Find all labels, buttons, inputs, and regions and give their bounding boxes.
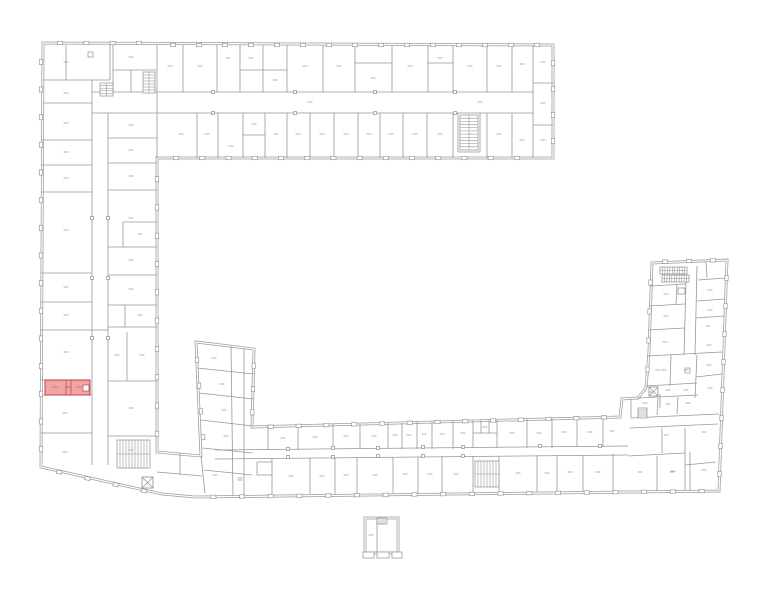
window-tick (39, 225, 42, 230)
window-tick (469, 492, 474, 495)
fixtures (88, 52, 690, 558)
window-tick (357, 156, 362, 159)
window-tick (722, 359, 726, 364)
window-tick (527, 491, 532, 494)
interior-wall (696, 374, 722, 377)
window-tick (710, 259, 715, 263)
column-mark (377, 455, 380, 458)
interior-wall (670, 355, 671, 386)
window-tick (200, 156, 205, 159)
window-tick (110, 41, 115, 44)
window-tick (518, 418, 523, 422)
window-tick (155, 205, 158, 210)
interior-wall (646, 383, 697, 386)
column-mark (462, 455, 465, 458)
window-tick (226, 156, 231, 159)
window-tick (141, 489, 147, 493)
window-tick (404, 43, 409, 46)
room-number-labels (63, 57, 713, 535)
interior-wall (157, 472, 202, 476)
interior-wall (648, 328, 685, 330)
staircase-icon (377, 518, 387, 524)
interior-wall (201, 420, 253, 426)
column-mark (374, 91, 377, 94)
window-tick (409, 156, 414, 159)
window-tick (201, 434, 205, 439)
window-tick (39, 391, 42, 396)
window-tick (670, 490, 675, 493)
column-mark (107, 277, 110, 280)
column-mark (454, 112, 457, 115)
column-mark (294, 112, 297, 115)
column-mark (91, 277, 94, 280)
window-tick (56, 470, 62, 474)
fixture (363, 552, 374, 558)
interior-wall (657, 398, 658, 415)
column-mark (599, 445, 602, 448)
building-outline (41, 43, 727, 553)
column-mark (287, 448, 290, 451)
window-tick (435, 420, 440, 424)
window-tick (574, 416, 579, 420)
corridor-columns (91, 91, 602, 459)
window-tick (39, 170, 42, 175)
window-tick (155, 431, 158, 436)
column-mark (422, 446, 425, 449)
elevator-icon (649, 387, 658, 396)
window-tick (412, 493, 417, 496)
elevators (142, 387, 658, 488)
window-tick (720, 415, 724, 420)
fixture (377, 552, 389, 558)
staircase-icon (143, 72, 155, 93)
window-tick (252, 363, 256, 368)
window-tick (383, 156, 388, 159)
staircase-icon (660, 267, 687, 274)
window-tick (551, 86, 554, 91)
window-tick (546, 417, 551, 421)
window-tick (155, 177, 158, 182)
interior-wall (696, 316, 724, 318)
window-tick (58, 41, 63, 44)
window-tick (514, 156, 519, 159)
window-tick (601, 416, 606, 420)
column-mark (294, 91, 297, 94)
window-tick (222, 43, 227, 46)
window-tick (642, 490, 647, 493)
window-tick (699, 489, 704, 492)
window-tick (39, 142, 42, 147)
window-tick (39, 447, 42, 452)
fixture (392, 552, 402, 558)
window-tick (430, 43, 435, 46)
window-tick (199, 409, 203, 414)
window-tick (725, 275, 729, 280)
window-tick (352, 43, 357, 46)
window-tick (718, 471, 722, 476)
window-tick (39, 198, 42, 203)
column-mark (91, 217, 94, 220)
window-tick (551, 112, 554, 117)
window-tick (174, 156, 179, 159)
interior-wall (649, 304, 685, 306)
window-tick (613, 490, 618, 493)
window-tick (84, 476, 90, 480)
window-tick (441, 492, 446, 495)
window-tick (274, 43, 279, 46)
window-tick (326, 43, 331, 46)
window-tick (326, 494, 331, 497)
fixture (678, 288, 685, 294)
window-tick (462, 156, 467, 159)
staircase-icon (460, 115, 478, 150)
interior-wall (677, 397, 678, 414)
floor-plan-canvas (0, 0, 772, 600)
window-tick (482, 43, 487, 46)
window-tick (331, 156, 336, 159)
window-tick (39, 115, 42, 120)
window-tick (378, 43, 383, 46)
window-tick (490, 419, 495, 423)
column-mark (539, 445, 542, 448)
column-mark (377, 447, 380, 450)
staircase-icon (662, 275, 689, 282)
window-tick (723, 331, 727, 336)
facade-windows (39, 41, 728, 498)
window-tick (719, 443, 723, 448)
window-tick (300, 43, 305, 46)
window-tick (508, 43, 513, 46)
window-tick (39, 59, 42, 64)
staircase-icon (100, 83, 113, 96)
window-tick (354, 493, 359, 496)
staircase-icon (475, 461, 499, 487)
window-tick (296, 424, 301, 428)
column-mark (91, 337, 94, 340)
window-tick (721, 387, 725, 392)
window-tick (436, 156, 441, 159)
interior-wall (698, 278, 726, 280)
window-tick (278, 156, 283, 159)
interior-wall (650, 284, 686, 286)
column-mark (332, 447, 335, 450)
column-mark (212, 112, 215, 115)
window-tick (39, 419, 42, 424)
window-tick (252, 156, 257, 159)
staircase-icon (117, 440, 150, 468)
window-tick (662, 260, 667, 264)
window-tick (39, 364, 42, 369)
window-tick (297, 494, 302, 497)
window-tick (647, 338, 651, 343)
interior-wall (628, 453, 685, 456)
window-tick (155, 403, 158, 408)
column-mark (454, 91, 457, 94)
window-tick (196, 43, 201, 46)
window-tick (324, 423, 329, 427)
interior-wall (198, 368, 254, 374)
window-tick (39, 308, 42, 313)
window-tick (39, 336, 42, 341)
column-mark (374, 112, 377, 115)
window-tick (488, 156, 493, 159)
window-tick (648, 309, 652, 314)
fixture (88, 52, 93, 57)
window-tick (498, 492, 503, 495)
window-tick (84, 41, 89, 44)
interior-wall (202, 448, 252, 453)
window-tick (155, 375, 158, 380)
column-mark (212, 91, 215, 94)
window-tick (155, 346, 158, 351)
window-tick (584, 491, 589, 494)
window-tick (39, 281, 42, 286)
window-tick (248, 43, 253, 46)
window-tick (407, 421, 412, 425)
window-tick (352, 423, 357, 427)
window-tick (39, 87, 42, 92)
window-tick (155, 318, 158, 323)
interior-wall (695, 355, 697, 398)
highlighted-room[interactable] (45, 380, 90, 395)
interior-wall (204, 470, 253, 475)
outer-wall-core (41, 43, 727, 497)
interior-wall (638, 395, 698, 398)
window-tick (195, 357, 199, 362)
window-tick (155, 233, 158, 238)
window-tick (155, 261, 158, 266)
column-mark (422, 455, 425, 458)
window-tick (251, 386, 255, 391)
window-tick (463, 419, 468, 423)
window-tick (379, 422, 384, 426)
column-mark (107, 337, 110, 340)
window-tick (551, 60, 554, 65)
window-tick (39, 253, 42, 258)
fixture (685, 368, 690, 373)
window-tick (113, 482, 119, 486)
floor-plan-page (0, 0, 772, 600)
window-tick (551, 138, 554, 143)
interior-wall (647, 352, 722, 356)
window-tick (456, 43, 461, 46)
window-tick (724, 303, 728, 308)
window-tick (305, 156, 310, 159)
staircase-icon (638, 408, 647, 418)
window-tick (155, 290, 158, 295)
column-mark (332, 456, 335, 459)
selected-room-notch (83, 385, 89, 391)
outer-wall (41, 43, 727, 497)
elevator-icon (142, 477, 153, 488)
window-tick (649, 280, 653, 285)
window-tick (251, 410, 255, 415)
window-tick (197, 383, 201, 388)
interior-wall (695, 266, 697, 355)
window-tick (383, 493, 388, 496)
column-mark (462, 446, 465, 449)
window-tick (170, 43, 175, 46)
window-tick (555, 491, 560, 494)
window-tick (268, 425, 273, 429)
window-tick (211, 495, 216, 498)
interior-wall (706, 262, 707, 278)
column-mark (287, 456, 290, 459)
interior-wall (201, 456, 205, 493)
window-tick (686, 259, 691, 263)
window-tick (646, 367, 650, 372)
interior-wall (199, 393, 253, 399)
window-tick (239, 495, 244, 498)
window-tick (268, 494, 273, 497)
interior-wall (697, 299, 725, 301)
column-mark (107, 217, 110, 220)
window-tick (534, 43, 539, 46)
interior-wall (630, 424, 718, 428)
interior-wall (676, 285, 677, 305)
window-tick (136, 41, 141, 44)
